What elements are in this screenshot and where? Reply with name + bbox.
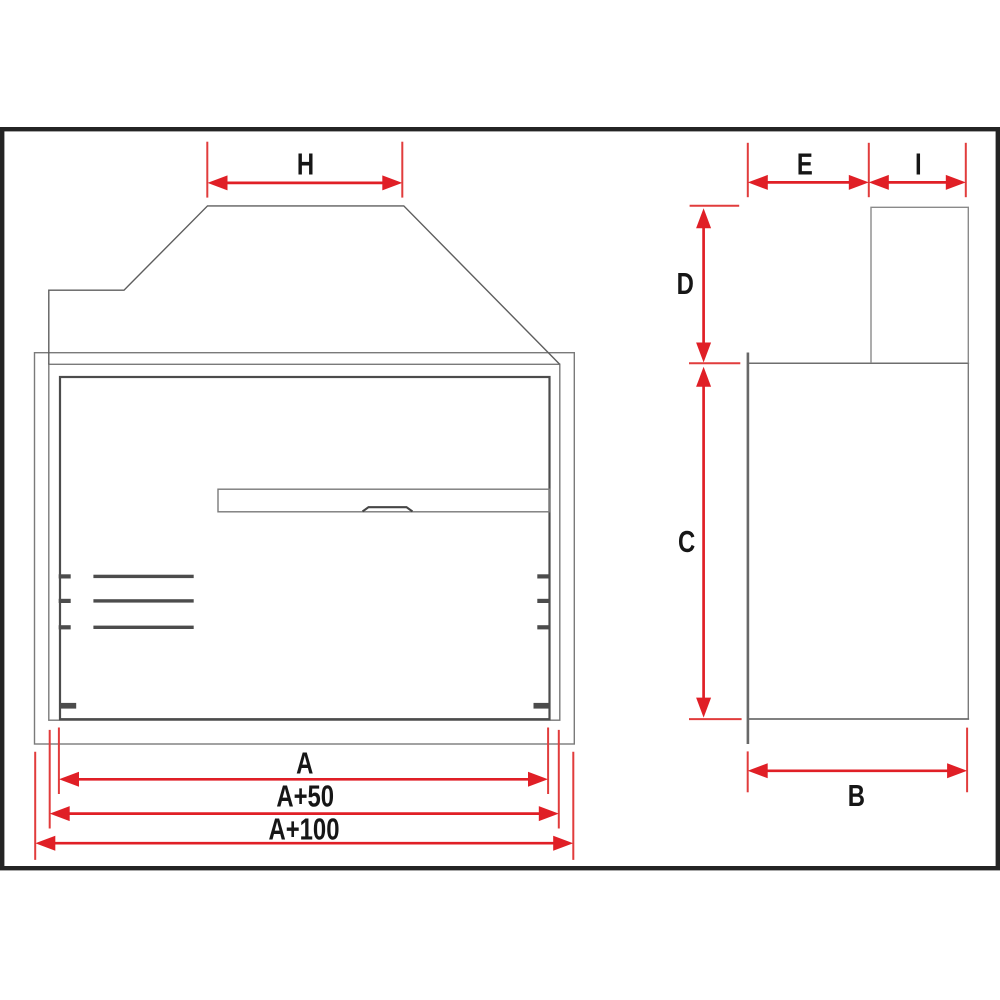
svg-text:C: C [678, 524, 695, 559]
svg-text:I: I [915, 146, 922, 181]
svg-text:D: D [677, 266, 694, 301]
svg-text:A+50: A+50 [276, 779, 334, 814]
svg-text:B: B [848, 778, 865, 813]
svg-text:A: A [296, 746, 313, 781]
svg-text:E: E [797, 146, 813, 181]
svg-text:H: H [297, 147, 314, 182]
svg-text:A+100: A+100 [268, 811, 339, 846]
